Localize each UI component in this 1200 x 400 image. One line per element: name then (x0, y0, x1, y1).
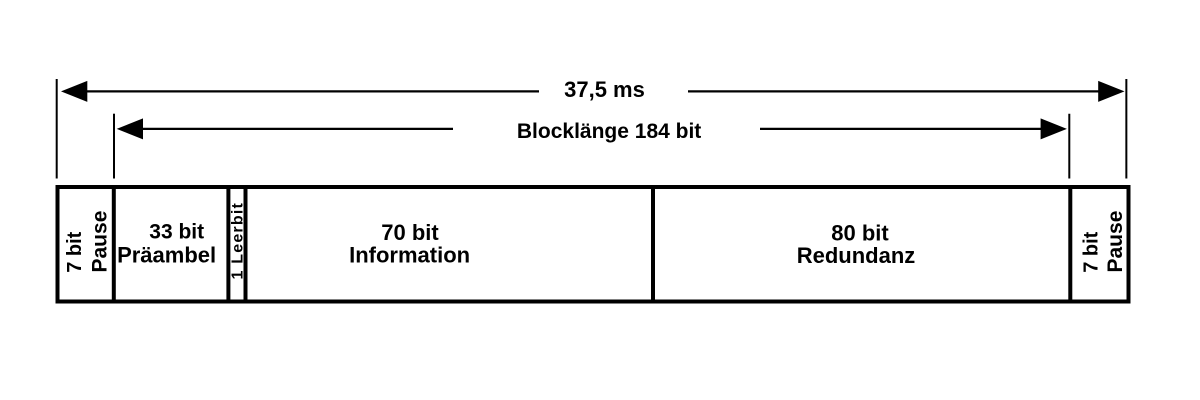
svg-text:Blocklänge 184 bit: Blocklänge 184 bit (517, 120, 701, 143)
svg-text:7 bit: 7 bit (64, 231, 86, 272)
svg-text:Pause: Pause (1104, 211, 1127, 273)
svg-text:Präambel: Präambel (117, 243, 216, 268)
svg-text:80 bit: 80 bit (831, 221, 889, 246)
svg-text:Redundanz: Redundanz (797, 243, 916, 268)
svg-text:7 bit: 7 bit (1081, 231, 1103, 272)
svg-text:Information: Information (349, 243, 470, 268)
svg-text:1 Leerbit: 1 Leerbit (230, 202, 247, 280)
svg-text:Pause: Pause (89, 211, 112, 273)
svg-text:33 bit: 33 bit (149, 221, 204, 244)
svg-text:37,5 ms: 37,5 ms (564, 77, 645, 102)
svg-text:70 bit: 70 bit (381, 220, 439, 245)
